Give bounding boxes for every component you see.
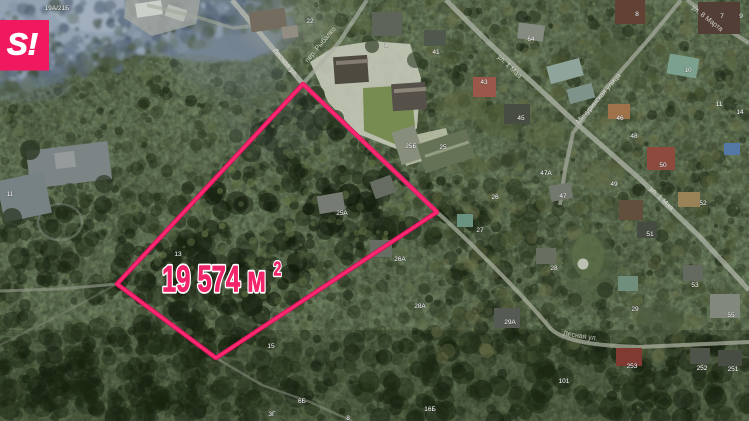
svg-text:47А: 47А — [540, 170, 552, 177]
svg-text:52: 52 — [699, 200, 707, 207]
svg-text:14: 14 — [736, 109, 744, 116]
svg-text:25А: 25А — [336, 210, 348, 217]
svg-text:11: 11 — [7, 191, 14, 198]
svg-text:46: 46 — [616, 115, 624, 122]
svg-text:8: 8 — [346, 415, 350, 421]
svg-text:9: 9 — [739, 13, 743, 20]
svg-text:47: 47 — [559, 193, 567, 200]
svg-text:51: 51 — [646, 231, 654, 238]
svg-text:43: 43 — [480, 79, 488, 86]
svg-text:S!: S! — [7, 27, 38, 62]
svg-text:1: 1 — [384, 42, 388, 49]
svg-text:22: 22 — [306, 18, 314, 25]
svg-text:2: 2 — [274, 257, 282, 280]
svg-text:10: 10 — [684, 67, 692, 74]
svg-text:16Б: 16Б — [424, 406, 436, 413]
svg-text:19 574 м: 19 574 м — [162, 258, 266, 300]
svg-text:6Б: 6Б — [298, 398, 306, 405]
svg-text:55: 55 — [727, 312, 735, 319]
svg-text:29А: 29А — [504, 319, 516, 326]
svg-text:50: 50 — [659, 162, 667, 169]
svg-text:49: 49 — [610, 181, 618, 188]
svg-text:45: 45 — [517, 115, 525, 122]
svg-text:11: 11 — [716, 101, 723, 108]
svg-text:27: 27 — [476, 227, 484, 234]
svg-text:29: 29 — [631, 306, 639, 313]
svg-text:253: 253 — [627, 363, 638, 370]
svg-text:64: 64 — [527, 36, 535, 43]
svg-text:8: 8 — [635, 11, 639, 18]
svg-text:26: 26 — [491, 194, 499, 201]
svg-text:28А: 28А — [414, 303, 426, 310]
svg-text:252: 252 — [697, 365, 708, 372]
svg-text:15: 15 — [267, 343, 275, 350]
svg-text:28: 28 — [550, 265, 558, 272]
svg-text:3Г: 3Г — [268, 411, 276, 418]
svg-text:41: 41 — [432, 49, 440, 56]
svg-text:101: 101 — [559, 378, 570, 385]
svg-text:53: 53 — [691, 282, 699, 289]
svg-text:48: 48 — [630, 133, 638, 140]
svg-text:251: 251 — [728, 366, 739, 373]
svg-text:25: 25 — [439, 144, 447, 151]
svg-text:26А: 26А — [394, 256, 406, 263]
svg-text:7: 7 — [720, 13, 724, 20]
svg-text:25Б: 25Б — [405, 143, 417, 150]
svg-text:19А/21Б: 19А/21Б — [45, 5, 70, 12]
